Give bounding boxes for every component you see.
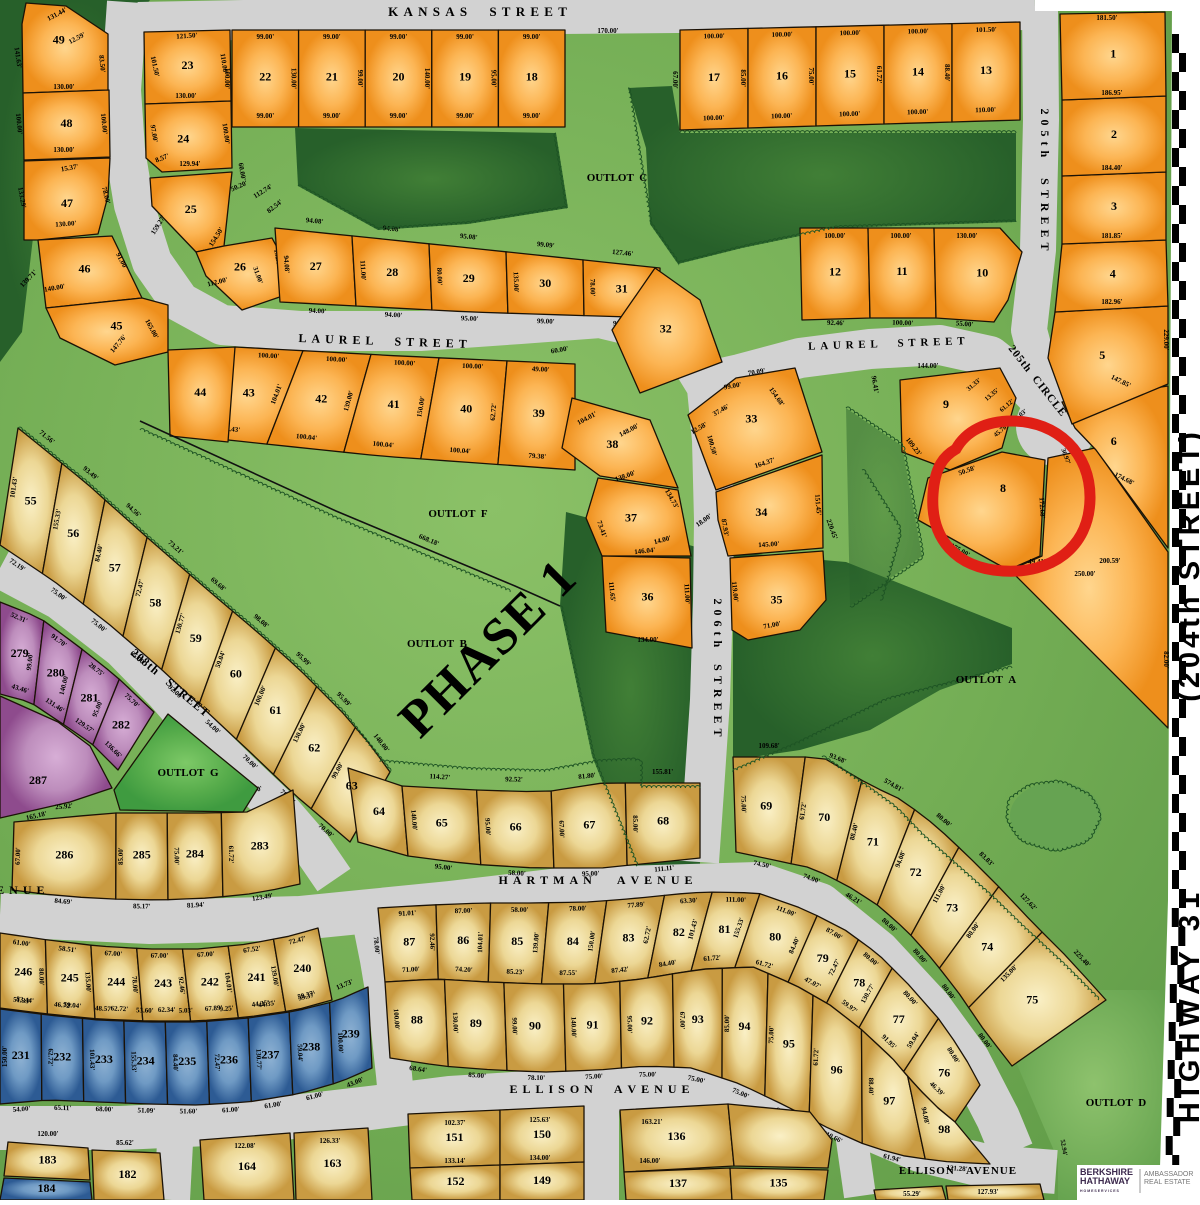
svg-text:85: 85 xyxy=(511,934,523,948)
svg-text:246: 246 xyxy=(14,965,32,979)
svg-text:88.40': 88.40' xyxy=(867,1078,875,1096)
svg-text:100.00': 100.00' xyxy=(890,232,911,240)
svg-text:99.00': 99.00' xyxy=(323,33,341,41)
svg-text:85.00': 85.00' xyxy=(631,815,639,833)
svg-text:109.68': 109.68' xyxy=(758,742,779,750)
svg-text:55.00': 55.00' xyxy=(955,319,973,328)
svg-text:95.00': 95.00' xyxy=(483,818,492,836)
svg-text:183: 183 xyxy=(39,1153,57,1167)
svg-text:234: 234 xyxy=(137,1054,155,1068)
svg-text:37: 37 xyxy=(625,511,637,525)
svg-text:151: 151 xyxy=(446,1130,464,1144)
svg-text:184.40': 184.40' xyxy=(1101,164,1122,172)
svg-text:94.00': 94.00' xyxy=(385,311,403,320)
svg-text:77.89': 77.89' xyxy=(627,900,645,910)
svg-text:30: 30 xyxy=(539,276,551,290)
svg-text:H O M E S E R V I C E S: H O M E S E R V I C E S xyxy=(1080,1189,1120,1193)
svg-text:280: 280 xyxy=(47,666,65,680)
svg-text:OUTLOT C: OUTLOT C xyxy=(587,172,648,184)
svg-text:244: 244 xyxy=(107,974,125,988)
svg-text:32: 32 xyxy=(660,322,672,336)
svg-text:237: 237 xyxy=(261,1048,279,1062)
svg-text:84.69': 84.69' xyxy=(54,897,72,907)
svg-text:134.00': 134.00' xyxy=(637,636,658,644)
svg-text:75.00': 75.00' xyxy=(807,68,815,86)
svg-text:125.63': 125.63' xyxy=(529,1116,550,1124)
svg-text:172.68': 172.68' xyxy=(1037,497,1046,519)
svg-text:73: 73 xyxy=(946,900,958,914)
svg-text:100.04': 100.04' xyxy=(449,446,471,455)
svg-text:95.00': 95.00' xyxy=(461,314,479,323)
svg-text:55.29': 55.29' xyxy=(903,1190,921,1198)
svg-text:99.00': 99.00' xyxy=(390,33,408,41)
svg-text:92.46': 92.46' xyxy=(428,933,437,951)
svg-text:152: 152 xyxy=(447,1174,465,1188)
svg-text:100.00': 100.00' xyxy=(258,351,280,360)
svg-text:80.00': 80.00' xyxy=(37,968,45,986)
svg-text:130.00': 130.00' xyxy=(53,146,74,154)
svg-text:49.00': 49.00' xyxy=(532,365,550,374)
svg-text:67.00': 67.00' xyxy=(557,820,566,838)
svg-text:67.00': 67.00' xyxy=(671,71,679,89)
svg-text:57: 57 xyxy=(109,560,121,574)
svg-text:34: 34 xyxy=(755,505,767,519)
svg-text:243: 243 xyxy=(154,976,172,990)
svg-text:250.00': 250.00' xyxy=(1074,570,1095,578)
svg-text:99.00': 99.00' xyxy=(523,33,541,41)
svg-text:14: 14 xyxy=(912,65,924,79)
svg-text:100.00': 100.00' xyxy=(839,29,860,37)
svg-text:61: 61 xyxy=(270,703,282,717)
svg-text:85.17': 85.17' xyxy=(133,902,151,910)
svg-text:240: 240 xyxy=(293,961,311,975)
svg-text:44: 44 xyxy=(194,385,206,399)
svg-text:HATHAWAY: HATHAWAY xyxy=(1080,1176,1130,1186)
svg-text:42: 42 xyxy=(315,391,327,405)
svg-text:26: 26 xyxy=(234,260,246,274)
svg-text:104.01': 104.01' xyxy=(476,931,485,952)
svg-text:OUTLOT G: OUTLOT G xyxy=(157,767,219,779)
svg-text:85.00': 85.00' xyxy=(468,1071,486,1080)
svg-text:150.00': 150.00' xyxy=(1,1046,9,1067)
svg-text:41: 41 xyxy=(388,397,400,411)
svg-text:45: 45 xyxy=(111,319,123,333)
svg-text:100.00': 100.00' xyxy=(326,355,348,364)
svg-text:94.00': 94.00' xyxy=(309,307,327,316)
svg-text:127.93': 127.93' xyxy=(977,1188,998,1196)
svg-text:(204th STREET): (204th STREET) xyxy=(1174,428,1200,702)
svg-text:100.00': 100.00' xyxy=(824,232,845,240)
svg-text:170.00': 170.00' xyxy=(597,27,618,35)
svg-text:22: 22 xyxy=(259,70,271,84)
svg-text:77: 77 xyxy=(893,1012,905,1026)
svg-text:96: 96 xyxy=(831,1062,843,1076)
svg-text:67.00': 67.00' xyxy=(14,847,23,865)
svg-text:10: 10 xyxy=(976,266,988,280)
svg-text:181.50': 181.50' xyxy=(1096,14,1117,22)
svg-text:92.52': 92.52' xyxy=(505,775,523,783)
svg-text:130.00': 130.00' xyxy=(290,68,298,89)
svg-text:58.00': 58.00' xyxy=(511,906,529,914)
svg-text:135: 135 xyxy=(770,1176,788,1190)
svg-text:100.00': 100.00' xyxy=(392,1009,401,1031)
svg-text:33: 33 xyxy=(745,412,757,426)
svg-text:48.57': 48.57' xyxy=(95,1004,113,1013)
svg-text:99.00': 99.00' xyxy=(256,33,274,41)
svg-text:287: 287 xyxy=(29,773,47,787)
svg-text:114.27': 114.27' xyxy=(429,772,450,781)
svg-text:121.50': 121.50' xyxy=(176,31,198,40)
svg-text:85.00': 85.00' xyxy=(117,847,125,865)
svg-text:99.00': 99.00' xyxy=(456,33,474,41)
svg-text:163: 163 xyxy=(324,1156,342,1170)
svg-text:23: 23 xyxy=(182,58,194,72)
svg-text:130.00': 130.00' xyxy=(53,83,74,91)
svg-text:93: 93 xyxy=(692,1012,704,1026)
svg-text:130.00': 130.00' xyxy=(175,92,196,100)
svg-text:31: 31 xyxy=(616,281,628,295)
svg-text:181.85': 181.85' xyxy=(1101,232,1122,240)
svg-text:OUTLOT A: OUTLOT A xyxy=(956,674,1017,686)
svg-text:REAL ESTATE: REAL ESTATE xyxy=(1144,1179,1191,1186)
svg-text:182.96': 182.96' xyxy=(1101,298,1122,306)
svg-text:43: 43 xyxy=(243,386,255,400)
svg-text:149: 149 xyxy=(533,1173,551,1187)
svg-text:94: 94 xyxy=(739,1019,751,1033)
svg-text:184: 184 xyxy=(38,1181,56,1195)
svg-text:4: 4 xyxy=(1110,267,1116,281)
svg-text:88: 88 xyxy=(411,1012,423,1026)
svg-text:238: 238 xyxy=(302,1040,320,1054)
svg-text:87.55': 87.55' xyxy=(559,969,577,977)
svg-text:81: 81 xyxy=(719,922,731,936)
svg-text:24: 24 xyxy=(177,132,189,146)
svg-text:99.00': 99.00' xyxy=(510,1017,519,1035)
svg-text:200.59': 200.59' xyxy=(1099,557,1120,565)
svg-text:88.40': 88.40' xyxy=(943,64,951,82)
svg-text:61.72': 61.72' xyxy=(227,846,235,864)
svg-text:232: 232 xyxy=(53,1050,71,1064)
svg-text:61.72': 61.72' xyxy=(875,66,883,84)
svg-text:285: 285 xyxy=(133,847,151,861)
svg-text:281: 281 xyxy=(81,690,99,704)
svg-text:100.00': 100.00' xyxy=(839,110,860,119)
svg-text:82.00': 82.00' xyxy=(1162,651,1170,669)
svg-text:186.95': 186.95' xyxy=(1101,89,1122,97)
svg-text:3: 3 xyxy=(1111,199,1117,213)
svg-text:71.00': 71.00' xyxy=(402,965,420,974)
svg-text:79.38': 79.38' xyxy=(528,452,546,461)
svg-text:27: 27 xyxy=(310,259,322,273)
svg-text:100.00': 100.00' xyxy=(394,359,416,368)
svg-text:9.25': 9.25' xyxy=(219,1004,234,1013)
svg-text:282: 282 xyxy=(112,718,130,732)
svg-text:17: 17 xyxy=(708,70,720,84)
svg-text:100.00': 100.00' xyxy=(907,27,928,35)
svg-text:OUTLOT D: OUTLOT D xyxy=(1086,1097,1147,1109)
svg-text:13: 13 xyxy=(980,63,992,77)
svg-text:98: 98 xyxy=(938,1122,950,1136)
svg-text:231: 231 xyxy=(12,1048,30,1062)
svg-text:68.00': 68.00' xyxy=(95,1105,113,1114)
svg-text:35: 35 xyxy=(771,593,783,607)
svg-text:283: 283 xyxy=(251,839,269,853)
svg-text:1: 1 xyxy=(1110,47,1116,61)
svg-text:129.94': 129.94' xyxy=(179,160,200,168)
svg-text:61.72': 61.72' xyxy=(703,954,721,963)
svg-text:87.00': 87.00' xyxy=(455,907,473,916)
svg-text:75: 75 xyxy=(1026,992,1038,1006)
svg-text:64: 64 xyxy=(373,804,385,818)
svg-text:46: 46 xyxy=(79,262,91,276)
svg-text:242: 242 xyxy=(201,975,219,989)
svg-text:100.00': 100.00' xyxy=(771,112,792,121)
svg-text:100.00': 100.00' xyxy=(703,32,724,40)
svg-text:235: 235 xyxy=(178,1054,196,1068)
svg-text:72: 72 xyxy=(910,865,922,879)
svg-text:63: 63 xyxy=(346,778,358,792)
svg-text:233: 233 xyxy=(95,1052,113,1066)
svg-text:40: 40 xyxy=(460,402,472,416)
svg-text:140.00': 140.00' xyxy=(569,1017,578,1038)
svg-text:18: 18 xyxy=(526,70,538,84)
svg-text:95.00': 95.00' xyxy=(489,70,497,88)
svg-text:97: 97 xyxy=(883,1093,895,1107)
svg-text:83: 83 xyxy=(623,931,635,945)
svg-text:163.21': 163.21' xyxy=(641,1118,662,1126)
svg-text:135.00': 135.00' xyxy=(512,272,521,293)
svg-text:2: 2 xyxy=(1111,127,1117,141)
svg-text:85.62': 85.62' xyxy=(116,1139,134,1147)
svg-text:92.46': 92.46' xyxy=(827,319,845,328)
svg-text:38: 38 xyxy=(606,437,618,451)
svg-text:21: 21 xyxy=(326,70,338,84)
svg-text:100.00': 100.00' xyxy=(462,362,484,371)
svg-text:78.00': 78.00' xyxy=(372,936,382,954)
svg-text:130.00': 130.00' xyxy=(55,219,77,228)
svg-text:99.00': 99.00' xyxy=(390,112,408,120)
svg-text:39: 39 xyxy=(533,406,545,420)
svg-text:99.00': 99.00' xyxy=(523,112,541,120)
svg-text:101.50': 101.50' xyxy=(975,26,996,34)
svg-text:75.00': 75.00' xyxy=(639,1070,657,1078)
svg-text:E L L I S O N A V E N U E: E L L I S O N A V E N U E xyxy=(509,1082,690,1096)
svg-text:78.00': 78.00' xyxy=(130,976,139,994)
svg-text:122.08': 122.08' xyxy=(234,1142,255,1150)
svg-text:75.00': 75.00' xyxy=(173,847,181,865)
svg-text:241: 241 xyxy=(248,970,266,984)
svg-text:11: 11 xyxy=(896,264,907,278)
svg-text:236: 236 xyxy=(220,1052,238,1066)
svg-text:99.00': 99.00' xyxy=(456,112,474,120)
svg-text:284: 284 xyxy=(186,847,204,861)
svg-text:100.00': 100.00' xyxy=(907,108,928,117)
svg-text:99.00': 99.00' xyxy=(323,112,341,120)
svg-text:ELLISON AVENUE: ELLISON AVENUE xyxy=(899,1165,1017,1177)
svg-text:49: 49 xyxy=(53,33,65,47)
svg-text:91.01': 91.01' xyxy=(398,909,416,918)
svg-text:62: 62 xyxy=(308,740,320,754)
svg-text:67.00': 67.00' xyxy=(104,949,122,958)
svg-text:164: 164 xyxy=(238,1159,256,1173)
svg-text:2 0 6 t h S T R E E T: 2 0 6 t h S T R E E T xyxy=(711,598,725,737)
svg-text:59: 59 xyxy=(190,631,202,645)
svg-text:71: 71 xyxy=(867,834,879,848)
svg-text:89: 89 xyxy=(470,1016,482,1030)
svg-text:51.09': 51.09' xyxy=(137,1106,155,1115)
svg-text:136: 136 xyxy=(668,1129,686,1143)
svg-text:90: 90 xyxy=(529,1018,541,1032)
svg-text:91: 91 xyxy=(587,1018,599,1032)
svg-text:79: 79 xyxy=(817,951,829,965)
svg-text:9: 9 xyxy=(943,397,949,411)
svg-text:85.00': 85.00' xyxy=(739,69,747,87)
svg-text:111.00': 111.00' xyxy=(725,896,746,905)
svg-text:K A N S A S S T R E E T: K A N S A S S T R E E T xyxy=(388,4,568,19)
svg-text:53.60': 53.60' xyxy=(136,1006,154,1014)
svg-text:229.00': 229.00' xyxy=(1162,329,1170,350)
svg-text:36: 36 xyxy=(642,590,654,604)
svg-text:92: 92 xyxy=(641,1014,653,1028)
svg-text:140.00': 140.00' xyxy=(423,68,431,89)
svg-text:67.00': 67.00' xyxy=(151,952,169,960)
svg-text:29: 29 xyxy=(463,271,475,285)
svg-text:95: 95 xyxy=(783,1036,795,1050)
svg-text:47: 47 xyxy=(61,196,73,210)
svg-text:99.00': 99.00' xyxy=(256,112,274,120)
svg-text:80.00': 80.00' xyxy=(435,267,444,285)
svg-text:8: 8 xyxy=(1000,481,1006,495)
svg-text:155.81': 155.81' xyxy=(652,768,673,776)
svg-text:28: 28 xyxy=(386,265,398,279)
svg-text:54.00': 54.00' xyxy=(12,1104,30,1113)
svg-text:95.00': 95.00' xyxy=(625,1016,633,1034)
svg-text:61.00': 61.00' xyxy=(222,1105,240,1114)
svg-text:78.00': 78.00' xyxy=(588,279,596,297)
svg-text:130.00': 130.00' xyxy=(956,232,977,240)
svg-text:V E N U E: V E N U E xyxy=(0,883,46,897)
svg-text:102.37': 102.37' xyxy=(444,1119,465,1127)
svg-text:OUTLOT F: OUTLOT F xyxy=(428,508,488,520)
svg-text:100.00': 100.00' xyxy=(892,319,914,328)
svg-text:144.00': 144.00' xyxy=(917,362,938,370)
svg-text:HIGHWAY 31: HIGHWAY 31 xyxy=(1174,887,1200,1123)
svg-text:5: 5 xyxy=(1099,348,1105,362)
svg-text:5.03': 5.03' xyxy=(179,1006,193,1014)
svg-text:78.00': 78.00' xyxy=(569,904,587,913)
svg-text:87: 87 xyxy=(403,934,415,948)
svg-text:65: 65 xyxy=(436,815,448,829)
svg-text:245: 245 xyxy=(61,970,79,984)
svg-text:AMBASSADOR: AMBASSADOR xyxy=(1144,1171,1193,1178)
svg-text:99.00': 99.00' xyxy=(356,70,364,88)
svg-text:137: 137 xyxy=(669,1176,687,1190)
svg-text:100.00': 100.00' xyxy=(223,68,231,89)
svg-text:56: 56 xyxy=(67,526,79,540)
svg-text:66: 66 xyxy=(510,820,522,834)
svg-text:62.72': 62.72' xyxy=(110,1004,128,1013)
svg-text:51.60': 51.60' xyxy=(180,1107,198,1115)
svg-text:69: 69 xyxy=(760,798,772,812)
svg-text:111.00': 111.00' xyxy=(682,583,691,604)
svg-text:76: 76 xyxy=(938,1065,950,1079)
svg-text:65.11': 65.11' xyxy=(54,1104,72,1112)
svg-text:86: 86 xyxy=(457,933,469,947)
svg-text:146.00': 146.00' xyxy=(639,1157,660,1165)
svg-text:286: 286 xyxy=(55,847,73,861)
svg-text:58: 58 xyxy=(149,595,161,609)
svg-text:99.00': 99.00' xyxy=(537,317,555,326)
svg-text:63.30': 63.30' xyxy=(680,896,698,905)
svg-text:60: 60 xyxy=(230,667,242,681)
svg-text:80: 80 xyxy=(769,930,781,944)
svg-text:75.00': 75.00' xyxy=(767,1026,775,1044)
svg-text:75.00': 75.00' xyxy=(739,795,748,813)
svg-text:134.00': 134.00' xyxy=(529,1154,550,1162)
svg-text:126.33': 126.33' xyxy=(319,1137,340,1145)
svg-text:6: 6 xyxy=(1111,434,1117,448)
svg-text:182: 182 xyxy=(119,1167,137,1181)
svg-text:100.00': 100.00' xyxy=(771,30,792,38)
svg-text:16: 16 xyxy=(776,68,788,82)
svg-text:130.00': 130.00' xyxy=(451,1012,460,1034)
svg-text:145.00': 145.00' xyxy=(758,540,780,549)
svg-text:25.92': 25.92' xyxy=(55,802,73,812)
svg-text:55: 55 xyxy=(25,494,37,508)
svg-text:15: 15 xyxy=(844,67,856,81)
svg-text:78.10': 78.10' xyxy=(527,1074,545,1082)
svg-text:62.72': 62.72' xyxy=(489,403,499,421)
svg-text:48: 48 xyxy=(61,116,73,130)
svg-text:25: 25 xyxy=(185,202,197,216)
svg-text:78: 78 xyxy=(853,975,865,989)
svg-text:150: 150 xyxy=(533,1127,551,1141)
svg-text:135.00': 135.00' xyxy=(83,971,92,993)
svg-text:20: 20 xyxy=(393,70,405,84)
svg-text:19: 19 xyxy=(459,70,471,84)
svg-text:12: 12 xyxy=(829,265,841,279)
svg-text:85.00': 85.00' xyxy=(723,1014,731,1032)
svg-text:75.00': 75.00' xyxy=(585,1072,603,1081)
svg-text:68: 68 xyxy=(657,813,669,827)
svg-text:100.00': 100.00' xyxy=(703,114,724,123)
svg-text:H A R T M A N A V E N U E: H A R T M A N A V E N U E xyxy=(499,873,694,887)
svg-text:94.08': 94.08' xyxy=(282,255,291,273)
svg-text:74.20': 74.20' xyxy=(455,965,473,974)
svg-text:67: 67 xyxy=(583,818,595,832)
svg-text:67.00': 67.00' xyxy=(197,950,215,959)
svg-text:61.72': 61.72' xyxy=(812,1048,821,1066)
svg-text:110.00': 110.00' xyxy=(975,106,996,115)
svg-text:239: 239 xyxy=(342,1027,360,1041)
svg-text:85.23': 85.23' xyxy=(506,968,524,977)
svg-text:2 0 5 t h S T R E E T: 2 0 5 t h S T R E E T xyxy=(1038,108,1052,251)
svg-text:84: 84 xyxy=(567,934,579,948)
svg-text:120.00': 120.00' xyxy=(37,1130,58,1138)
svg-text:67.00': 67.00' xyxy=(678,1012,686,1030)
svg-text:81.94': 81.94' xyxy=(187,901,205,910)
svg-text:74: 74 xyxy=(981,940,993,954)
svg-text:82: 82 xyxy=(673,925,685,939)
svg-text:279: 279 xyxy=(11,646,29,660)
svg-text:70: 70 xyxy=(818,810,830,824)
svg-text:111.00': 111.00' xyxy=(358,260,367,281)
svg-text:133.14': 133.14' xyxy=(444,1157,465,1165)
svg-text:62.34': 62.34' xyxy=(158,1006,176,1014)
